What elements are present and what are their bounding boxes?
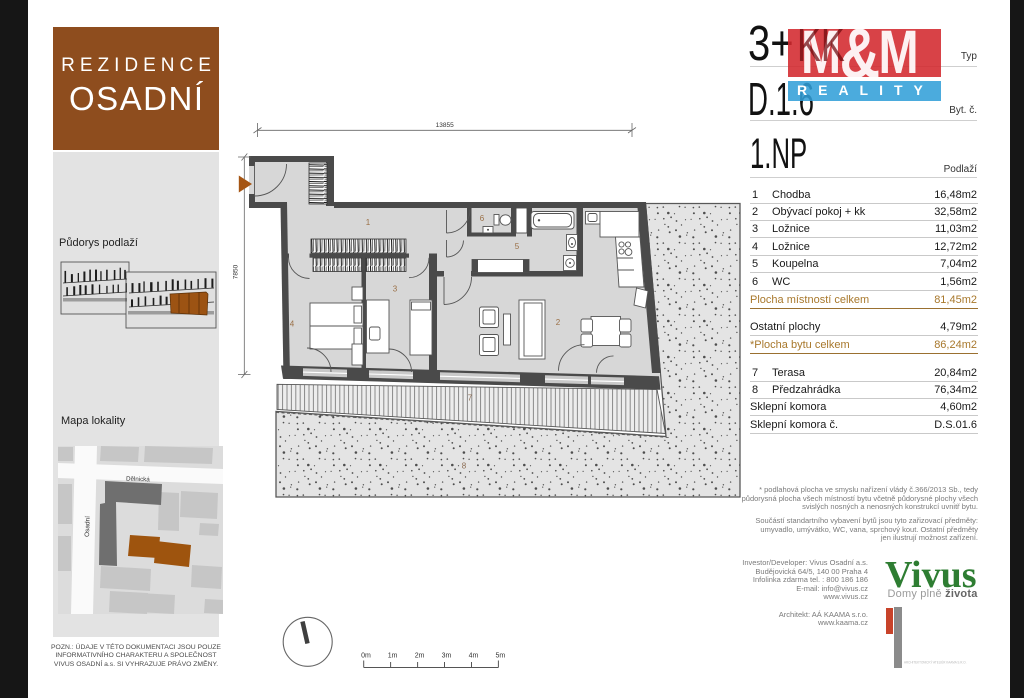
svg-text:6: 6 [480, 214, 485, 223]
svg-text:8: 8 [462, 462, 467, 471]
svg-text:1m: 1m [388, 653, 398, 660]
svg-text:5: 5 [515, 242, 520, 251]
svg-text:3m: 3m [442, 653, 452, 660]
svg-text:4: 4 [290, 320, 295, 329]
svg-text:7850: 7850 [233, 264, 240, 279]
svg-text:7: 7 [468, 394, 473, 403]
svg-text:0m: 0m [361, 653, 371, 660]
svg-text:13855: 13855 [436, 122, 454, 129]
svg-text:3: 3 [393, 285, 398, 294]
svg-text:5m: 5m [496, 653, 506, 660]
svg-text:2: 2 [556, 318, 561, 327]
svg-text:2m: 2m [415, 653, 425, 660]
svg-text:1: 1 [366, 218, 371, 227]
svg-text:4m: 4m [469, 653, 479, 660]
